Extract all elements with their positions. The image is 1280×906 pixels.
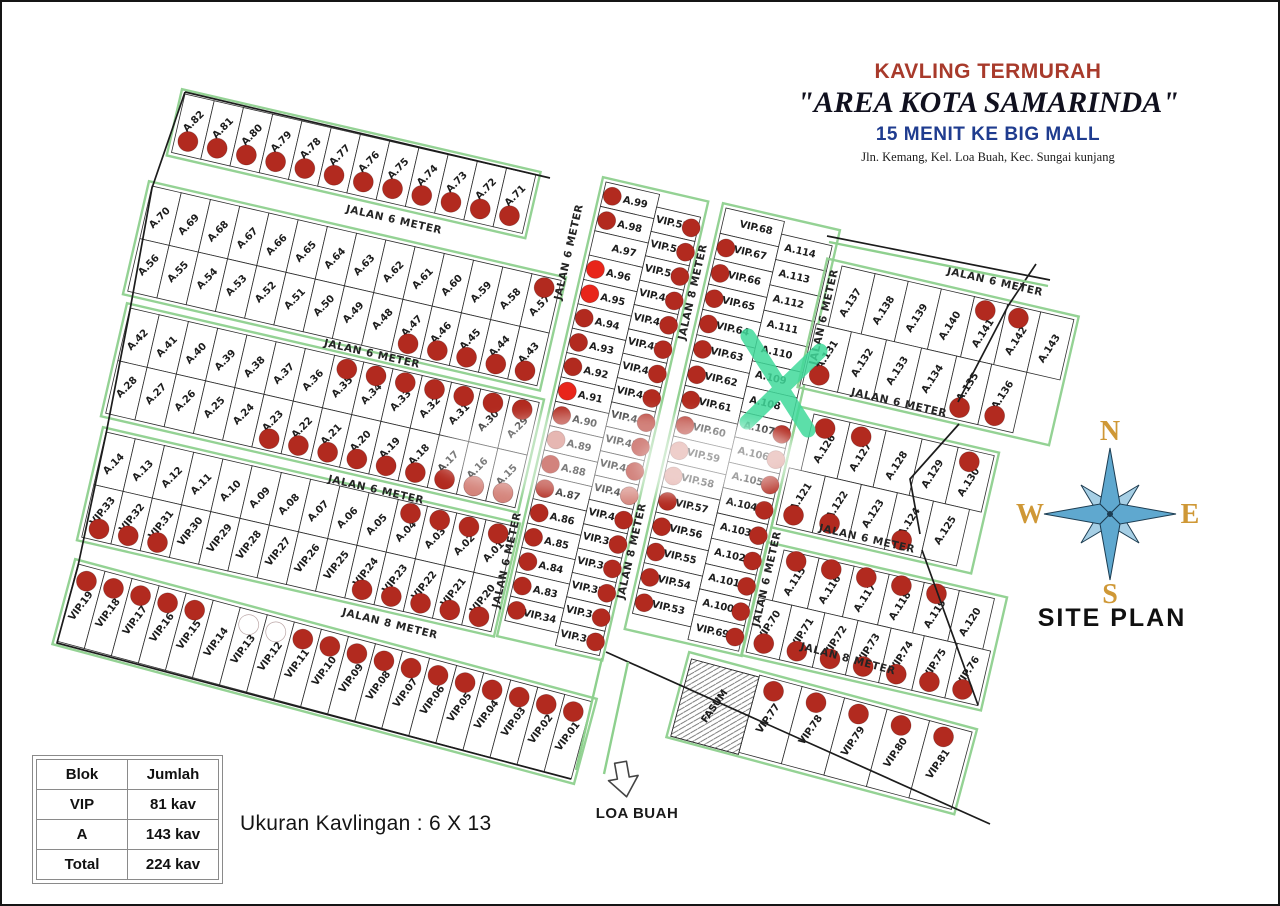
legend-row: Total224 kav: [37, 850, 219, 880]
site-plan-canvas: A.82A.81A.80A.79A.78A.77A.76A.75A.74A.73…: [0, 0, 1280, 906]
legend-cell: A: [37, 820, 128, 850]
legend-table-body: VIP81 kavA143 kavTotal224 kav: [37, 790, 219, 880]
legend-cell: 143 kav: [128, 820, 219, 850]
legend-row: A143 kav: [37, 820, 219, 850]
compass-e-label: E: [1181, 499, 1200, 530]
road-label: JALAN 6 METER: [552, 203, 586, 302]
legend-table: BlokJumlah VIP81 kavA143 kavTotal224 kav: [32, 755, 223, 884]
lot-size-note: Ukuran Kavlingan : 6 X 13: [240, 812, 491, 836]
siteplan-caption: SITE PLAN: [1012, 604, 1212, 633]
title-block: KAVLING TERMURAH "AREA KOTA SAMARINDA" 1…: [760, 60, 1216, 165]
compass-w-label: W: [1016, 499, 1044, 530]
legend-table-head-row: BlokJumlah: [37, 760, 219, 790]
page-title: "AREA KOTA SAMARINDA": [760, 86, 1216, 120]
legend-header-cell: Blok: [37, 760, 128, 790]
legend-cell: 81 kav: [128, 790, 219, 820]
title-tagline: 15 MENIT KE BIG MALL: [760, 124, 1216, 146]
legend-row: VIP81 kav: [37, 790, 219, 820]
legend-cell: Total: [37, 850, 128, 880]
compass-n-label: N: [1100, 416, 1120, 447]
title-address: Jln. Kemang, Kel. Loa Buah, Kec. Sungai …: [760, 150, 1216, 165]
legend-cell: 224 kav: [128, 850, 219, 880]
title-subtitle: KAVLING TERMURAH: [760, 60, 1216, 84]
legend-cell: VIP: [37, 790, 128, 820]
exit-area-label: LOA BUAH: [577, 805, 697, 822]
exit-arrow-icon: [606, 760, 642, 800]
legend-header-cell: Jumlah: [128, 760, 219, 790]
